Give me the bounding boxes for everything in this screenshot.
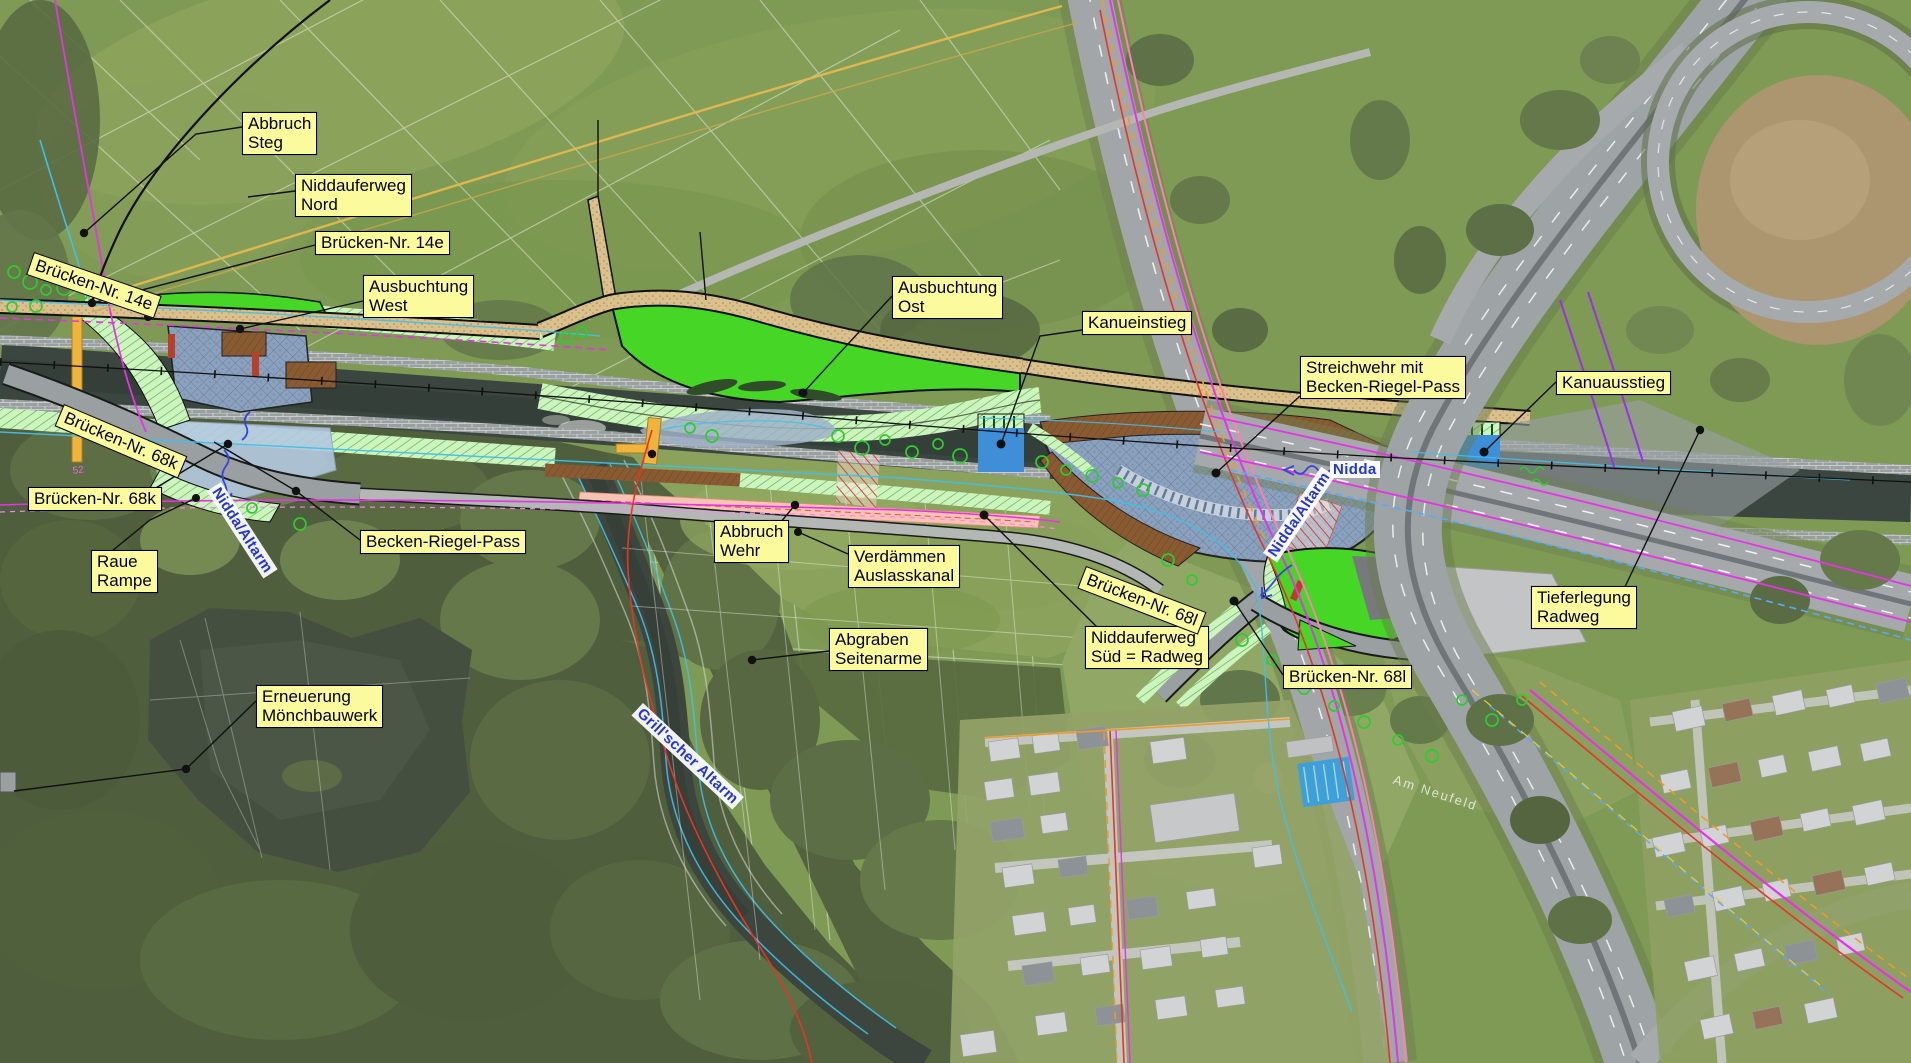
- label-niddauferweg-nord: Niddauferweg Nord: [295, 174, 412, 217]
- label-erneuerung-moenchbauwerk: Erneuerung Mönchbauwerk: [256, 685, 383, 728]
- label-kanueinstieg: Kanueinstieg: [1082, 311, 1192, 335]
- label-bruecken-nr-14e: Brücken-Nr. 14e: [315, 231, 450, 255]
- label-becken-riegel-pass: Becken-Riegel-Pass: [360, 530, 526, 554]
- label-verdaemmen-auslasskanal: Verdämmen Auslasskanal: [848, 545, 960, 588]
- label-streichwehr: Streichwehr mit Becken-Riegel-Pass: [1300, 356, 1466, 399]
- parcel-number-52: 52: [72, 464, 85, 476]
- label-raue-rampe: Raue Rampe: [91, 550, 158, 593]
- label-tieferlegung-radweg: Tieferlegung Radweg: [1531, 586, 1637, 629]
- label-abbruch-steg: Abbruch Steg: [242, 112, 317, 155]
- plan-map: Abbruch Steg Niddauferweg Nord Brücken-N…: [0, 0, 1911, 1063]
- label-abbruch-wehr: Abbruch Wehr: [714, 520, 789, 563]
- label-bruecken-nr-68k: Brücken-Nr. 68k: [28, 487, 162, 511]
- label-ausbuchtung-ost: Ausbuchtung Ost: [892, 276, 1003, 319]
- label-kanuausstieg: Kanuausstieg: [1556, 371, 1671, 395]
- housing-east: [1630, 660, 1911, 1063]
- label-nidda: Nidda: [1330, 461, 1380, 478]
- label-abgraben-seitenarme: Abgraben Seitenarme: [829, 628, 928, 671]
- aerial-plan-canvas: [0, 0, 1911, 1063]
- label-bruecken-nr-68l: Brücken-Nr. 68l: [1283, 665, 1412, 689]
- label-niddauferweg-sued: Niddauferweg Süd = Radweg: [1085, 626, 1209, 669]
- label-ausbuchtung-west: Ausbuchtung West: [363, 275, 474, 318]
